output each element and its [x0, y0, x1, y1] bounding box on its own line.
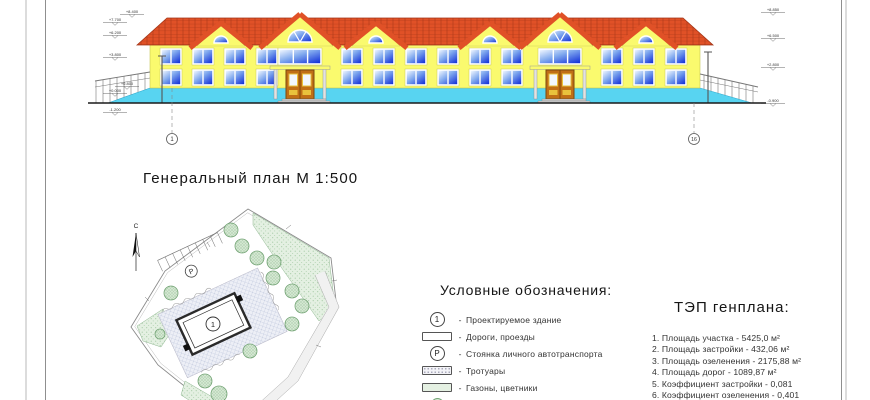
- tep-line: 4. Площадь дорог - 1089,87 м²: [652, 367, 870, 378]
- elevation-mark-value: +6.500: [767, 33, 780, 38]
- window: [538, 48, 582, 65]
- legend-label: Дороги, проезды: [466, 332, 535, 342]
- tep-line: 1. Площадь участка - 5425,0 м²: [652, 333, 870, 344]
- legend-label: Стоянка личного автотранспорта: [466, 349, 603, 359]
- tree: [250, 251, 264, 265]
- north-arrow: С: [133, 223, 140, 271]
- axis-marker-16: 16: [689, 103, 700, 145]
- window: [224, 69, 246, 86]
- window: [192, 69, 214, 86]
- window: [373, 69, 395, 86]
- elevation-mark: -0.900: [761, 98, 785, 106]
- elevation-mark-value: +6.200: [109, 30, 122, 35]
- elevation-marks-right: +8.850 +6.500 +2.800 -0.900: [761, 7, 785, 106]
- elevation-mark-value: -1.200: [109, 107, 121, 112]
- window: [437, 48, 459, 65]
- window: [341, 69, 363, 86]
- window: [665, 69, 687, 86]
- legend-dash: -: [454, 349, 466, 359]
- window: [601, 69, 623, 86]
- window: [192, 48, 214, 65]
- legend-item: - Тротуары: [420, 362, 672, 379]
- window: [501, 48, 523, 65]
- legend-item: - Дороги, проезды: [420, 328, 672, 345]
- tree: [211, 386, 227, 400]
- elevation-mark: +6.500: [761, 33, 785, 41]
- tree: [295, 299, 309, 313]
- sidewalk-symbol: [422, 366, 452, 375]
- building-number: 1: [211, 320, 215, 329]
- tep-line: 6. Коэффициент озеленения - 0,401: [652, 390, 870, 400]
- window: [665, 48, 687, 65]
- window: [278, 48, 322, 65]
- elevation-mark: +3.800: [103, 52, 127, 60]
- site-plan-title: Генеральный план М 1:500: [143, 170, 358, 187]
- tree: [243, 344, 257, 358]
- elevation-mark-value: +0.000: [109, 88, 122, 93]
- lawn-symbol: [422, 383, 452, 392]
- tree: [155, 329, 165, 339]
- site-plan: P 1 С: [123, 205, 363, 400]
- drawing-sheet: +8.400 +7.700 +6.200 +3.800 +0.800 +0.00…: [0, 0, 870, 400]
- window: [405, 48, 427, 65]
- window: [601, 48, 623, 65]
- window: [469, 69, 491, 86]
- window: [341, 48, 363, 65]
- building-number-circle: 1: [206, 317, 220, 331]
- legend-dash: -: [454, 332, 466, 342]
- legend-label: Проектируемое здание: [466, 315, 562, 325]
- window: [224, 48, 246, 65]
- elevation-mark-value: +2.800: [767, 62, 780, 67]
- elevation-mark: -1.200: [103, 107, 127, 115]
- tree: [164, 286, 178, 300]
- elevation-mark-value: +0.800: [121, 81, 134, 86]
- window: [437, 69, 459, 86]
- tep-line: 2. Площадь застройки - 432,06 м²: [652, 344, 870, 355]
- elevation-mark: +6.200: [103, 30, 127, 38]
- elevation-mark-value: +3.800: [109, 52, 122, 57]
- tree: [267, 255, 281, 269]
- tep-panel: ТЭП генплана: 1. Площадь участка - 5425,…: [652, 299, 870, 400]
- window: [160, 69, 182, 86]
- elevation-mark: +0.000: [103, 88, 127, 96]
- legend: Условные обозначения: 1 - Проектируемое …: [420, 282, 672, 400]
- legend-label: Газоны, цветники: [466, 383, 538, 393]
- tep-line: 3. Площадь озеленения - 2175,88 м²: [652, 356, 870, 367]
- axis-number: 16: [691, 137, 697, 143]
- north-label: С: [134, 223, 139, 230]
- road-symbol: [422, 332, 452, 341]
- tree: [198, 374, 212, 388]
- legend-title: Условные обозначения:: [420, 282, 672, 298]
- tree: [224, 223, 238, 237]
- elevation-mark: +7.700: [103, 17, 127, 25]
- window: [633, 48, 655, 65]
- tep-title: ТЭП генплана:: [652, 299, 870, 316]
- elevation-mark-value: +7.700: [109, 17, 122, 22]
- elevation-mark: +8.850: [761, 7, 785, 15]
- tree: [235, 239, 249, 253]
- legend-dash: -: [454, 383, 466, 393]
- elevation-mark-value: +8.850: [767, 7, 780, 12]
- legend-item: - Газоны, цветники: [420, 379, 672, 396]
- tree: [285, 284, 299, 298]
- elevation-mark-value: +8.400: [126, 9, 139, 14]
- legend-dash: -: [454, 315, 466, 325]
- legend-label: Тротуары: [466, 366, 505, 376]
- elevation-mark: +8.400: [120, 9, 144, 17]
- legend-item: 1 - Проектируемое здание: [420, 311, 672, 328]
- building-elevation: +8.400 +7.700 +6.200 +3.800 +0.800 +0.00…: [0, 0, 870, 160]
- window: [633, 69, 655, 86]
- tep-line: 5. Коэффициент застройки - 0,081: [652, 379, 870, 390]
- window: [469, 48, 491, 65]
- parking-symbol: P: [430, 346, 445, 361]
- building-symbol: 1: [430, 312, 445, 327]
- window: [256, 48, 278, 65]
- window: [373, 48, 395, 65]
- elevation-mark-value: -0.900: [767, 98, 779, 103]
- legend-item: - Деревья и кустарники: [420, 396, 672, 400]
- elevation-mark: +2.800: [761, 62, 785, 70]
- legend-dash: -: [454, 366, 466, 376]
- window: [405, 69, 427, 86]
- legend-item: P - Стоянка личного автотранспорта: [420, 345, 672, 362]
- window: [501, 69, 523, 86]
- tree: [266, 271, 280, 285]
- plinth: [108, 88, 752, 103]
- tree: [285, 317, 299, 331]
